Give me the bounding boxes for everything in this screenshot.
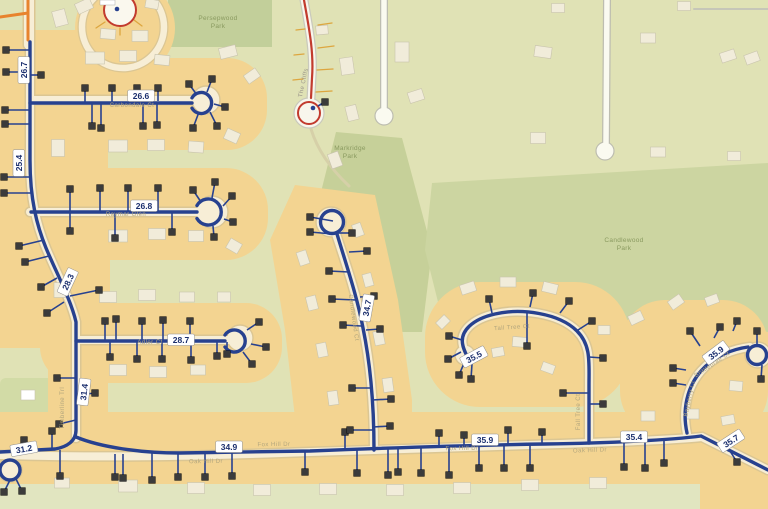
- service-connection-marker: [354, 470, 361, 477]
- service-connection-marker: [112, 235, 119, 242]
- service-connection-marker: [256, 319, 263, 326]
- service-connection-marker: [349, 385, 356, 392]
- service-connection-marker: [249, 361, 256, 368]
- measurement-label: 35.4: [621, 431, 648, 443]
- service-connection-marker: [44, 310, 51, 317]
- service-connection-marker: [120, 475, 127, 482]
- service-connection-marker: [734, 318, 741, 325]
- service-connection-marker: [214, 123, 221, 130]
- svg-text:26.8: 26.8: [136, 201, 153, 211]
- service-connection-marker: [524, 343, 531, 350]
- building: [531, 133, 546, 144]
- service-connection-marker: [621, 464, 628, 471]
- service-connection-marker: [139, 318, 146, 325]
- street-name-label: Raymar Glen: [106, 212, 146, 218]
- service-connection-marker: [717, 324, 724, 331]
- building: [598, 326, 610, 335]
- building: [491, 347, 504, 358]
- service-connection-marker: [661, 460, 668, 467]
- service-connection-marker: [589, 318, 596, 325]
- service-connection-marker: [670, 365, 677, 372]
- service-connection-marker: [418, 470, 425, 477]
- measurement-label: 26.6: [128, 90, 155, 102]
- street-name-label: Adler Ct: [137, 340, 162, 346]
- service-connection-marker: [687, 328, 694, 335]
- service-connection-marker: [1, 489, 8, 496]
- building: [100, 28, 116, 39]
- street-name-label: Fox Hill Dr: [445, 446, 478, 453]
- service-connection-marker: [186, 81, 193, 88]
- service-connection-marker: [160, 317, 167, 324]
- building: [728, 152, 741, 161]
- service-connection-marker: [347, 427, 354, 434]
- service-connection-marker: [307, 229, 314, 236]
- service-connection-marker: [560, 390, 567, 397]
- building: [316, 25, 329, 35]
- service-connection-marker: [754, 328, 761, 335]
- service-connection-marker: [38, 284, 45, 291]
- service-connection-marker: [209, 76, 216, 83]
- service-connection-marker: [2, 121, 9, 128]
- service-connection-marker: [263, 344, 270, 351]
- service-connection-marker: [446, 472, 453, 479]
- building: [641, 33, 656, 43]
- service-connection-marker: [377, 326, 384, 333]
- service-connection-marker: [187, 318, 194, 325]
- building: [120, 51, 137, 62]
- street-name-label: Carbondale Ct: [110, 103, 155, 109]
- svg-text:31.4: 31.4: [78, 383, 90, 401]
- service-connection-marker: [188, 357, 195, 364]
- measurement-label: 35.9: [472, 434, 499, 446]
- service-connection-marker: [230, 219, 237, 226]
- measurement-label: 34.9: [216, 441, 243, 453]
- service-connection-marker: [527, 465, 534, 472]
- measurement-label: 28.7: [168, 334, 195, 346]
- building: [218, 292, 231, 302]
- service-connection-marker: [54, 375, 61, 382]
- service-connection-marker: [57, 473, 64, 480]
- service-connection-marker: [89, 123, 96, 130]
- service-connection-marker: [109, 85, 116, 92]
- street-name-label: Fall Tree Ct: [576, 394, 582, 430]
- service-connection-marker: [758, 376, 765, 383]
- building: [109, 140, 128, 152]
- service-connection-marker: [159, 356, 166, 363]
- building: [188, 483, 205, 494]
- building: [641, 411, 655, 421]
- service-connection-marker: [155, 85, 162, 92]
- service-connection-marker: [92, 390, 99, 397]
- svg-text:26.6: 26.6: [133, 91, 150, 101]
- service-connection-marker: [224, 351, 231, 358]
- service-connection-marker: [307, 214, 314, 221]
- service-connection-marker: [505, 427, 512, 434]
- building: [191, 365, 206, 375]
- building: [132, 31, 148, 42]
- service-connection-marker: [461, 432, 468, 439]
- service-connection-marker: [97, 185, 104, 192]
- service-connection-marker: [322, 99, 329, 106]
- service-connection-marker: [486, 296, 493, 303]
- service-connection-marker: [364, 248, 371, 255]
- building: [188, 141, 204, 153]
- building: [21, 390, 35, 400]
- measurement-label: 26.8: [131, 200, 158, 212]
- service-connection-marker: [98, 125, 105, 132]
- service-connection-marker: [1, 190, 8, 197]
- service-connection-marker: [211, 234, 218, 241]
- building: [154, 54, 170, 66]
- service-connection-marker: [670, 380, 677, 387]
- service-connection-marker: [734, 459, 741, 466]
- service-connection-marker: [395, 469, 402, 476]
- building: [139, 290, 156, 301]
- service-connection-marker: [349, 230, 356, 237]
- service-connection-marker: [476, 465, 483, 472]
- building: [148, 140, 165, 151]
- service-connection-marker: [202, 474, 209, 481]
- service-connection-marker: [102, 318, 109, 325]
- service-connection-marker: [2, 107, 9, 114]
- building: [382, 377, 394, 392]
- service-connection-marker: [190, 187, 197, 194]
- measurement-label: 26.7: [18, 57, 30, 84]
- building: [189, 231, 204, 242]
- service-connection-marker: [3, 47, 10, 54]
- service-connection-marker: [214, 353, 221, 360]
- svg-text:35.9: 35.9: [477, 435, 494, 445]
- service-connection-marker: [134, 356, 141, 363]
- service-connection-marker: [67, 186, 74, 193]
- building: [110, 365, 127, 376]
- building: [254, 485, 271, 496]
- service-connection-marker: [82, 85, 89, 92]
- svg-text:25.4: 25.4: [14, 154, 24, 171]
- service-connection-marker: [154, 122, 161, 129]
- building: [522, 480, 539, 491]
- street-name-label: Oak Hill Dr: [573, 447, 607, 454]
- building: [119, 480, 138, 492]
- building: [590, 478, 607, 489]
- service-connection-marker: [212, 179, 219, 186]
- service-connection-marker: [642, 465, 649, 472]
- service-connection-marker: [149, 477, 156, 484]
- service-connection-marker: [446, 333, 453, 340]
- service-connection-marker: [107, 354, 114, 361]
- building: [320, 484, 337, 495]
- service-connection-marker: [600, 355, 607, 362]
- street-name-label: Timberline Trl: [60, 387, 66, 429]
- service-connection-marker: [229, 193, 236, 200]
- service-connection-marker: [530, 290, 537, 297]
- service-connection-marker: [96, 287, 103, 294]
- service-connection-marker: [155, 185, 162, 192]
- service-connection-marker: [229, 473, 236, 480]
- building: [500, 277, 516, 287]
- building: [149, 229, 166, 240]
- building: [150, 367, 167, 378]
- service-connection-marker: [3, 69, 10, 76]
- building: [339, 57, 354, 76]
- map-canvas[interactable]: PersepwoodParkMarkridgeParkCandlewoodPar…: [0, 0, 768, 509]
- service-connection-marker: [445, 356, 452, 363]
- service-connection-marker: [340, 322, 347, 329]
- service-connection-marker: [16, 243, 23, 250]
- measurement-label: 25.4: [13, 150, 25, 177]
- service-connection-marker: [222, 104, 229, 111]
- service-connection-marker: [19, 488, 26, 495]
- building: [721, 414, 735, 425]
- building: [395, 42, 409, 62]
- building: [552, 4, 565, 13]
- street-name-label: Fox Hill Dr: [257, 442, 290, 449]
- service-connection-marker: [566, 298, 573, 305]
- service-connection-marker: [385, 472, 392, 479]
- building: [534, 45, 552, 58]
- svg-text:35.4: 35.4: [626, 432, 643, 442]
- building: [678, 2, 691, 11]
- svg-text:34.9: 34.9: [221, 442, 238, 452]
- service-connection-marker: [22, 259, 29, 266]
- service-connection-marker: [38, 72, 45, 79]
- service-connection-marker: [112, 474, 119, 481]
- service-connection-marker: [125, 185, 132, 192]
- street-name-label: Oak Hill Dr: [189, 459, 223, 466]
- building: [729, 380, 743, 391]
- service-connection-marker: [436, 430, 443, 437]
- service-connection-marker: [388, 396, 395, 403]
- service-connection-marker: [175, 474, 182, 481]
- svg-text:28.7: 28.7: [173, 335, 190, 345]
- service-connection-marker: [49, 428, 56, 435]
- building: [327, 390, 339, 405]
- service-connection-marker: [67, 228, 74, 235]
- building: [86, 52, 105, 64]
- service-connection-marker: [1, 174, 8, 181]
- service-connection-marker: [468, 376, 475, 383]
- building: [651, 147, 666, 157]
- service-connection-marker: [326, 268, 333, 275]
- service-connection-marker: [600, 401, 607, 408]
- building: [52, 140, 65, 157]
- service-connection-marker: [190, 125, 197, 132]
- service-connection-marker: [501, 465, 508, 472]
- service-connection-marker: [539, 429, 546, 436]
- service-connection-marker: [302, 469, 309, 476]
- service-connection-marker: [329, 296, 336, 303]
- building: [180, 292, 195, 302]
- service-connection-marker: [140, 123, 147, 130]
- service-connection-marker: [456, 372, 463, 379]
- building: [387, 485, 404, 496]
- building: [454, 483, 471, 494]
- service-connection-marker: [387, 423, 394, 430]
- svg-text:26.7: 26.7: [19, 61, 29, 78]
- service-connection-marker: [169, 229, 176, 236]
- service-connection-marker: [113, 316, 120, 323]
